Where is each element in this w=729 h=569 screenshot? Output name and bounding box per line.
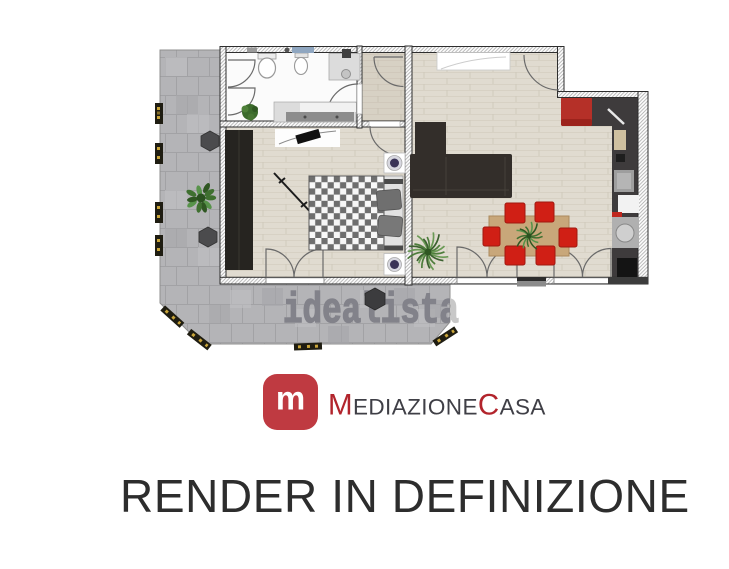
svg-text:m: m xyxy=(276,380,305,417)
svg-text:RENDER IN DEFINIZIONE: RENDER IN DEFINIZIONE xyxy=(120,470,690,522)
